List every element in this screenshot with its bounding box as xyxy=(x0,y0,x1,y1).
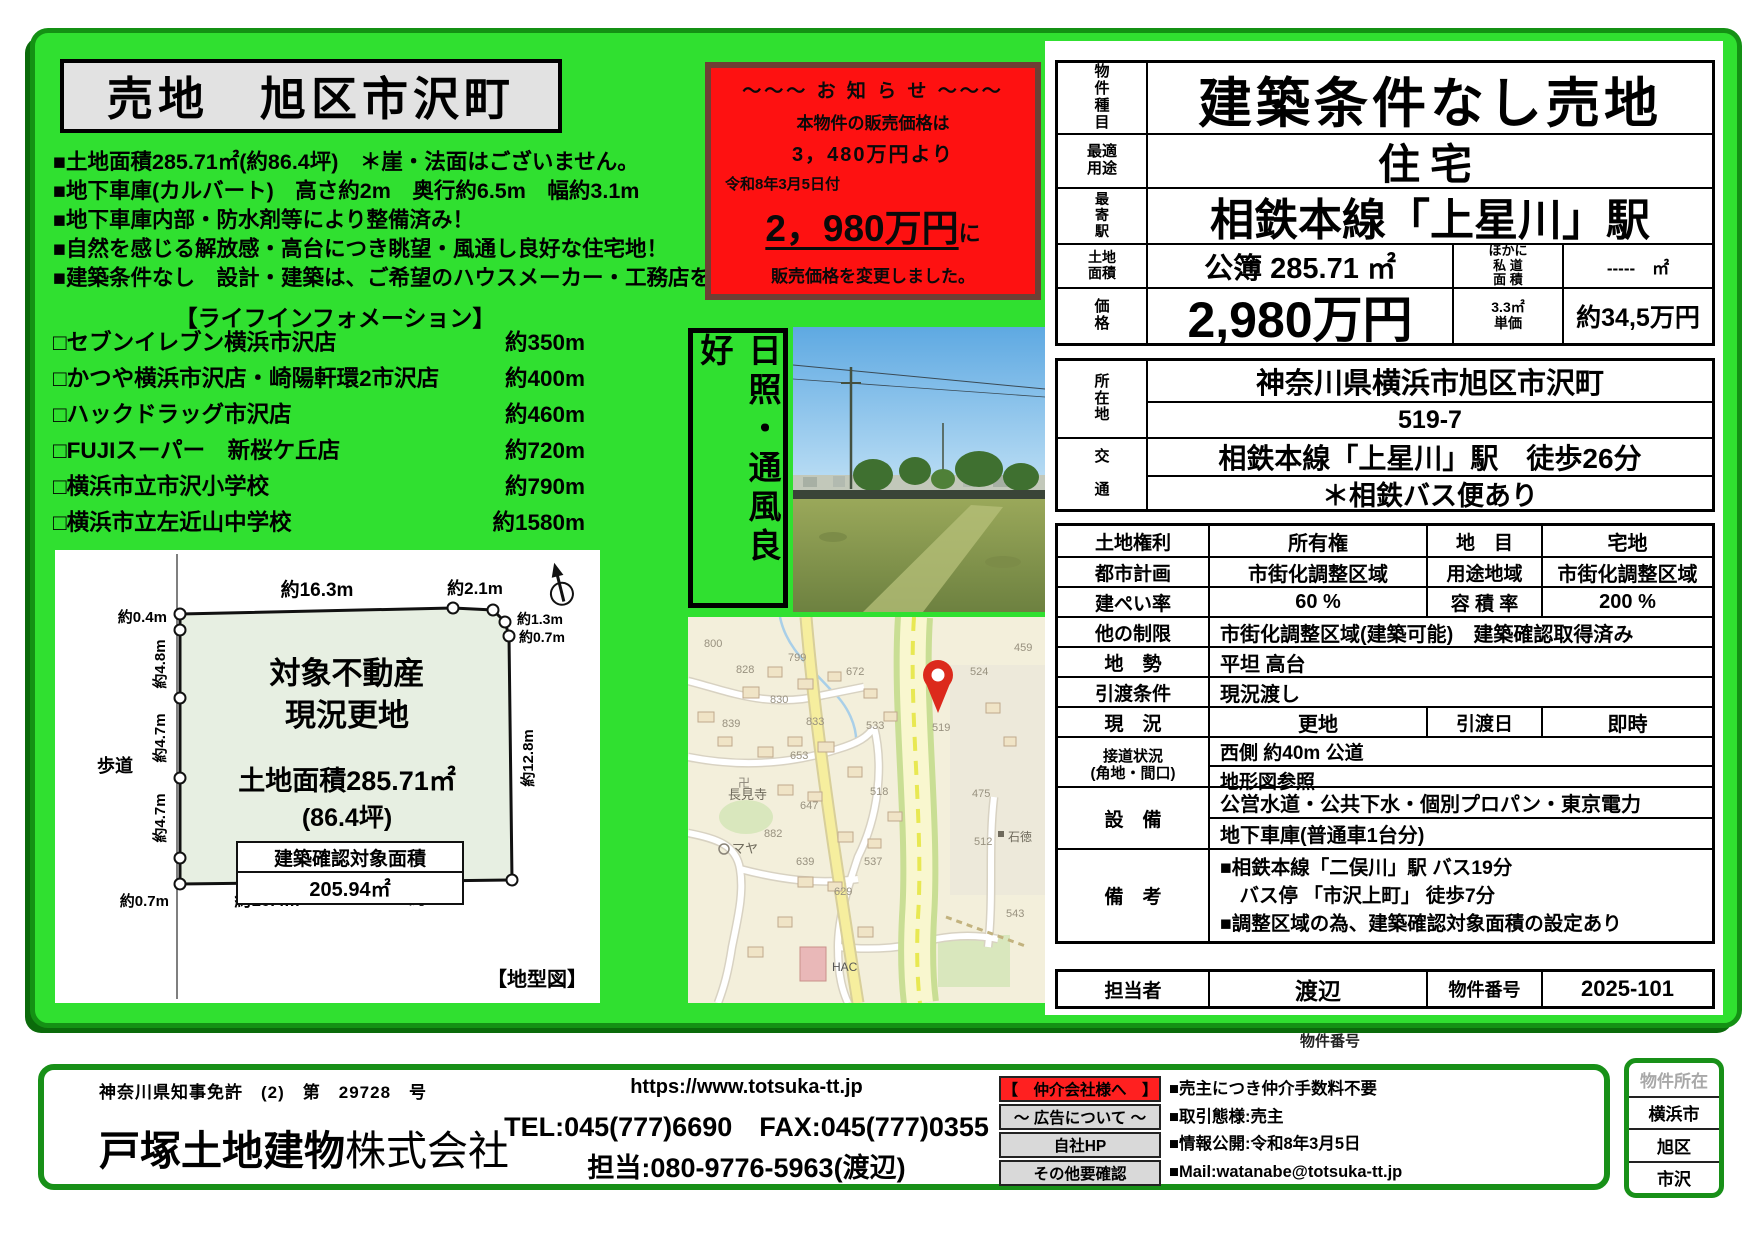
confirm-area-box: 建築確認対象面積 205.94㎡ xyxy=(237,842,463,904)
life-item-name: □FUJIスーパー 新桜ケ丘店 xyxy=(53,433,340,465)
map-label: 629 xyxy=(834,886,852,898)
row-value: 公営水道・公共下水・個別プロパン・東京電力 xyxy=(1210,788,1712,817)
row-label: 価 格 xyxy=(1058,289,1146,343)
map-poi-icon xyxy=(998,831,1004,837)
dim-right1: 約1.3m xyxy=(517,611,563,627)
map-label: 833 xyxy=(806,716,824,728)
notice-line1: 本物件の販売価格は xyxy=(711,109,1035,134)
page-title-text: 売地 旭区市沢町 xyxy=(107,63,515,129)
note-list: ■売主につき仲介手数料不要 ■取引態様:売主 ■情報公開:令和8年3月5日 ■M… xyxy=(1161,1076,1604,1184)
land-photo xyxy=(793,327,1045,612)
row-value: 市街化調整区域(建築可能) 建築確認取得済み xyxy=(1208,618,1712,646)
area-map-svg: 800 828 799 672 830 833 839 533 653 518 … xyxy=(688,617,1045,1003)
row-value: 現況渡し xyxy=(1208,678,1712,706)
life-item-name: □かつや横浜市沢店・崎陽軒環2市沢店 xyxy=(53,361,439,393)
footer-contact-block: https://www.totsuka-tt.jp TEL:045(777)66… xyxy=(494,1070,999,1184)
notice-new-price: 2，980万円 xyxy=(765,198,958,252)
price-value: 2,980万円 xyxy=(1146,289,1452,343)
map-label: 512 xyxy=(974,836,992,848)
plot-tsubo-text: (86.4坪) xyxy=(302,804,392,832)
row-label: 土地 面積 xyxy=(1058,245,1146,287)
sidewalk-label: 歩道 xyxy=(97,755,133,776)
area-map: 800 828 799 672 830 833 839 533 653 518 … xyxy=(688,617,1045,1003)
life-item-name: □セブンイレブン横浜市沢店 xyxy=(53,325,337,357)
map-label: 672 xyxy=(846,666,864,678)
map-pin-label: 519 xyxy=(932,722,950,734)
life-item-name: □横浜市立左近山中学校 xyxy=(53,505,292,537)
price-notice-box: ～～～ お 知 ら せ ～～～ 本物件の販売価格は 3，480万円より 令和8年… xyxy=(705,62,1041,300)
row-label: 備 考 xyxy=(1058,850,1208,941)
map-label: 524 xyxy=(970,666,988,678)
note-item: ■Mail:watanabe@totsuka-tt.jp xyxy=(1169,1159,1604,1187)
access-line1: 相鉄本線「上星川」駅 徒歩26分 xyxy=(1146,437,1712,475)
plot-caption-2: 現況更地 xyxy=(285,698,409,733)
row-label: 物 件 種 目 xyxy=(1058,63,1146,133)
temple-mark: 卍 xyxy=(738,776,750,790)
row-value: 市街化調整区域 xyxy=(1541,558,1712,586)
map-label: 475 xyxy=(972,788,990,800)
best-use-value: 住宅 xyxy=(1146,135,1712,187)
row-city-planning: 都市計画 市街化調整区域 用途地域 市街化調整区域 xyxy=(1058,556,1712,586)
row-handover-terms: 引渡条件 現況渡し xyxy=(1058,676,1712,706)
land-shape-diagram: 約16.3m 約2.1m 約0.4m 約4.8m 約4.7m 約4.7m 約0.… xyxy=(55,550,600,1003)
life-item-name: □ハックドラッグ市沢店 xyxy=(53,397,292,429)
sunlight-badge: 日照・通風良好 xyxy=(688,328,788,608)
dim-left5: 約0.7m xyxy=(120,892,169,910)
footer-box: 神奈川県知事免許 (2) 第 29728 号 戸塚土地建物株式会社 https:… xyxy=(38,1064,1610,1190)
row-value: 60 % xyxy=(1208,588,1426,616)
property-location-box: 物件所在 横浜市 旭区 市沢 xyxy=(1624,1058,1724,1198)
plot-svg: 約16.3m 約2.1m 約0.4m 約4.8m 約4.7m 約4.7m 約0.… xyxy=(55,550,600,1003)
company-name-suffix: 株式会社 xyxy=(345,1128,509,1174)
page-title: 売地 旭区市沢町 xyxy=(60,59,562,133)
row-property-type: 物 件 種 目 建築条件なし売地 xyxy=(1058,63,1712,133)
spec-table-details: 土地権利 所有権 地 目 宅地 都市計画 市街化調整区域 用途地域 市街化調整区… xyxy=(1055,523,1715,944)
row-label: 建ぺい率 xyxy=(1058,588,1208,616)
row-land-area: 土地 面積 公簿 285.71 ㎡ ほかに 私 道 面 積 ----- ㎡ xyxy=(1058,243,1712,287)
life-item-distance: 約790m xyxy=(435,469,585,501)
life-item-distance: 約350m xyxy=(435,325,585,357)
row-value: 地下車庫(普通車1台分) xyxy=(1210,817,1712,848)
row-value: 所有権 xyxy=(1208,526,1426,556)
row-staff: 担当者 渡辺 物件番号 2025-101 xyxy=(1058,972,1712,1006)
photo-fence xyxy=(793,490,1045,499)
row-value: 市街化調整区域 xyxy=(1208,558,1426,586)
row-value: 西側 約40m 公道 xyxy=(1210,738,1712,765)
row-label: 最適 用途 xyxy=(1058,135,1146,187)
map-label: 石徳 xyxy=(1008,829,1032,844)
remarks-line: ■調整区域の為、建築確認対象面積の設定あり xyxy=(1220,910,1712,938)
row-label: 接道状況 (角地・間口) xyxy=(1058,738,1208,794)
row-coverage-ratio: 建ぺい率 60 % 容 積 率 200 % xyxy=(1058,586,1712,616)
row-label: 土地権利 xyxy=(1058,526,1208,556)
notice-old-price: 3，480万円より xyxy=(711,138,1035,167)
location-box-row: 旭区 xyxy=(1629,1128,1719,1161)
tel-fax-text: TEL:045(777)6690 FAX:045(777)0355 xyxy=(494,1105,999,1144)
row-price: 価 格 2,980万円 3.3㎡ 単価 約34,5万円 xyxy=(1058,287,1712,343)
row-utilities: 設 備 公営水道・公共下水・個別プロパン・東京電力 地下車庫(普通車1台分) xyxy=(1058,786,1712,848)
dim-top: 約16.3m xyxy=(281,578,354,601)
life-item-distance: 約1580m xyxy=(435,505,585,537)
map-label: 543 xyxy=(1006,908,1024,920)
tag-advertising: ～ 広告について ～ xyxy=(999,1104,1161,1130)
tag-broker: 【 仲介会社様へ 】 xyxy=(999,1076,1161,1102)
row-value: 宅地 xyxy=(1541,526,1712,556)
map-label: 800 xyxy=(704,638,722,650)
remarks-line: ■相鉄本線「二俣川」駅 バス19分 xyxy=(1220,854,1712,882)
dim-left1: 約0.4m xyxy=(118,608,167,626)
map-label: 839 xyxy=(722,718,740,730)
property-number-value: 2025-101 xyxy=(1541,972,1712,1006)
spec-table-location: 所 在 地 神奈川県横浜市旭区市沢町 519-7 交 通 相鉄本線「上星川」駅 … xyxy=(1055,358,1715,512)
row-other-restrictions: 他の制限 市街化調整区域(建築可能) 建築確認取得済み xyxy=(1058,616,1712,646)
compass-icon xyxy=(544,560,576,607)
row-label: 地 勢 xyxy=(1058,648,1208,676)
confirm-area-title: 建築確認対象面積 xyxy=(274,847,426,870)
map-label: 647 xyxy=(800,800,818,812)
map-label: 882 xyxy=(764,828,782,840)
plot-area-text: 土地面積285.71㎡ xyxy=(238,765,456,796)
license-text: 神奈川県知事免許 (2) 第 29728 号 xyxy=(99,1078,494,1103)
dim-left2: 約4.8m xyxy=(151,639,169,688)
row-label-address: 所 在 地 xyxy=(1058,361,1146,437)
property-type-value: 建築条件なし売地 xyxy=(1146,63,1712,133)
row-label: 最 寄 駅 xyxy=(1058,189,1146,243)
agent-tags: 【 仲介会社様へ 】 ～ 広告について ～ 自社HP その他要確認 xyxy=(999,1076,1161,1184)
company-name: 戸塚土地建物株式会社 xyxy=(99,1117,494,1177)
notice-header: ～～～ お 知 ら せ ～～～ xyxy=(711,76,1035,103)
staff-label: 担当者 xyxy=(1058,972,1208,1006)
row-land-rights: 土地権利 所有権 地 目 宅地 xyxy=(1058,526,1712,556)
map-label: 828 xyxy=(736,664,754,676)
notice-new-price-suffix: に xyxy=(959,216,981,248)
company-name-main: 戸塚土地建物 xyxy=(99,1128,345,1174)
footer-company-block: 神奈川県知事免許 (2) 第 29728 号 戸塚土地建物株式会社 xyxy=(44,1070,494,1184)
spec-table-staff: 担当者 渡辺 物件番号 2025-101 xyxy=(1055,969,1715,1009)
dim-right2: 約0.7m xyxy=(519,629,565,645)
tag-own-hp: 自社HP xyxy=(999,1132,1161,1158)
dim-top2: 約2.1m xyxy=(447,578,503,598)
row-value: 更地 xyxy=(1208,708,1426,736)
row-current-status: 現 況 更地 引渡日 即時 xyxy=(1058,706,1712,736)
row-label: 現 況 xyxy=(1058,708,1208,736)
map-hac-building xyxy=(800,947,826,981)
unit-price-value: 約34,5万円 xyxy=(1562,289,1712,343)
row-label: 設 備 xyxy=(1058,788,1208,848)
footer-broker-block: 【 仲介会社様へ 】 ～ 広告について ～ 自社HP その他要確認 ■売主につき… xyxy=(999,1070,1604,1184)
map-label: 537 xyxy=(864,856,882,868)
row-topography: 地 勢 平坦 高台 xyxy=(1058,646,1712,676)
confirm-area-value: 205.94㎡ xyxy=(309,877,390,901)
address-line1: 神奈川県横浜市旭区市沢町 xyxy=(1146,361,1712,401)
row-best-use: 最適 用途 住宅 xyxy=(1058,133,1712,187)
property-number-caption: 物件番号 xyxy=(1300,1030,1360,1051)
row-value: 200 % xyxy=(1541,588,1712,616)
map-label: マヤ xyxy=(732,841,758,856)
life-item-distance: 約460m xyxy=(435,397,585,429)
row-label: 容 積 率 xyxy=(1426,588,1541,616)
map-label: 518 xyxy=(870,786,888,798)
map-label: 459 xyxy=(1014,642,1032,654)
row-label: 引渡条件 xyxy=(1058,678,1208,706)
main-frame: 売地 旭区市沢町 ■土地面積285.71㎡(約86.4坪) ＊崖・法面はございま… xyxy=(30,28,1742,1028)
map-label: 639 xyxy=(796,856,814,868)
row-label: 用途地域 xyxy=(1426,558,1541,586)
row-label: 他の制限 xyxy=(1058,618,1208,646)
land-photo-svg xyxy=(793,327,1045,612)
map-label: 653 xyxy=(790,750,808,762)
row-remarks: 備 考 ■相鉄本線「二俣川」駅 バス19分 バス停 「市沢上町」 徒歩7分 ■調… xyxy=(1058,848,1712,941)
life-item-distance: 約720m xyxy=(435,433,585,465)
plot-caption-1: 対象不動産 xyxy=(270,656,425,691)
map-label: 533 xyxy=(866,720,884,732)
notice-date: 令和8年3月5日付 xyxy=(725,173,1035,194)
spec-table-main: 物 件 種 目 建築条件なし売地 最適 用途 住宅 最 寄 駅 相鉄本線「上星川… xyxy=(1055,60,1715,346)
sub-label: ほかに 私 道 面 積 xyxy=(1452,245,1562,287)
map-park xyxy=(938,935,1010,987)
diagram-caption: 【地型図】 xyxy=(487,968,587,991)
note-item: ■情報公開:令和8年3月5日 xyxy=(1169,1131,1604,1159)
row-nearest-station: 最 寄 駅 相鉄本線「上星川」駅 xyxy=(1058,187,1712,243)
private-road-value: ----- ㎡ xyxy=(1562,245,1712,287)
location-box-row: 横浜市 xyxy=(1629,1096,1719,1129)
access-line2: ＊相鉄バス便あり xyxy=(1146,475,1712,509)
map-label: 799 xyxy=(788,652,806,664)
remarks-line: バス停 「市沢上町」 徒歩7分 xyxy=(1220,882,1712,910)
tag-other-confirm: その他要確認 xyxy=(999,1160,1161,1186)
map-label: HAC xyxy=(832,960,858,974)
website-url: https://www.totsuka-tt.jp xyxy=(494,1076,999,1099)
row-label: 都市計画 xyxy=(1058,558,1208,586)
dim-left3: 約4.7m xyxy=(151,713,169,762)
address-line2: 519-7 xyxy=(1146,401,1712,437)
note-item: ■売主につき仲介手数料不要 xyxy=(1169,1076,1604,1104)
row-value: 平坦 高台 xyxy=(1208,648,1712,676)
nearest-station-value: 相鉄本線「上星川」駅 xyxy=(1146,189,1712,243)
row-value: 即時 xyxy=(1541,708,1712,736)
life-item-name: □横浜市立市沢小学校 xyxy=(53,469,269,501)
notice-line3: 販売価格を変更しました。 xyxy=(711,262,1035,287)
staff-name: 渡辺 xyxy=(1208,972,1426,1006)
life-item-distance: 約400m xyxy=(435,361,585,393)
flyer-page: 売地 旭区市沢町 ■土地面積285.71㎡(約86.4坪) ＊崖・法面はございま… xyxy=(0,0,1754,1241)
row-label: 地 目 xyxy=(1426,526,1541,556)
location-box-header: 物件所在 xyxy=(1629,1063,1719,1096)
mobile-contact: 担当:080-9776-5963(渡辺) xyxy=(494,1146,999,1185)
location-box-row: 市沢 xyxy=(1629,1161,1719,1194)
property-number-label: 物件番号 xyxy=(1426,972,1541,1006)
row-label: 引渡日 xyxy=(1426,708,1541,736)
dim-right3: 約12.8m xyxy=(519,729,537,787)
dim-left4: 約4.7m xyxy=(151,793,169,842)
note-item: ■取引態様:売主 xyxy=(1169,1104,1604,1132)
row-label-access: 交 通 xyxy=(1058,437,1146,509)
land-area-value: 公簿 285.71 ㎡ xyxy=(1146,245,1452,287)
sub-label: 3.3㎡ 単価 xyxy=(1452,289,1562,343)
map-label: 830 xyxy=(770,694,788,706)
row-road-frontage: 接道状況 (角地・間口) 西側 約40m 公道 地形図参照 xyxy=(1058,736,1712,786)
